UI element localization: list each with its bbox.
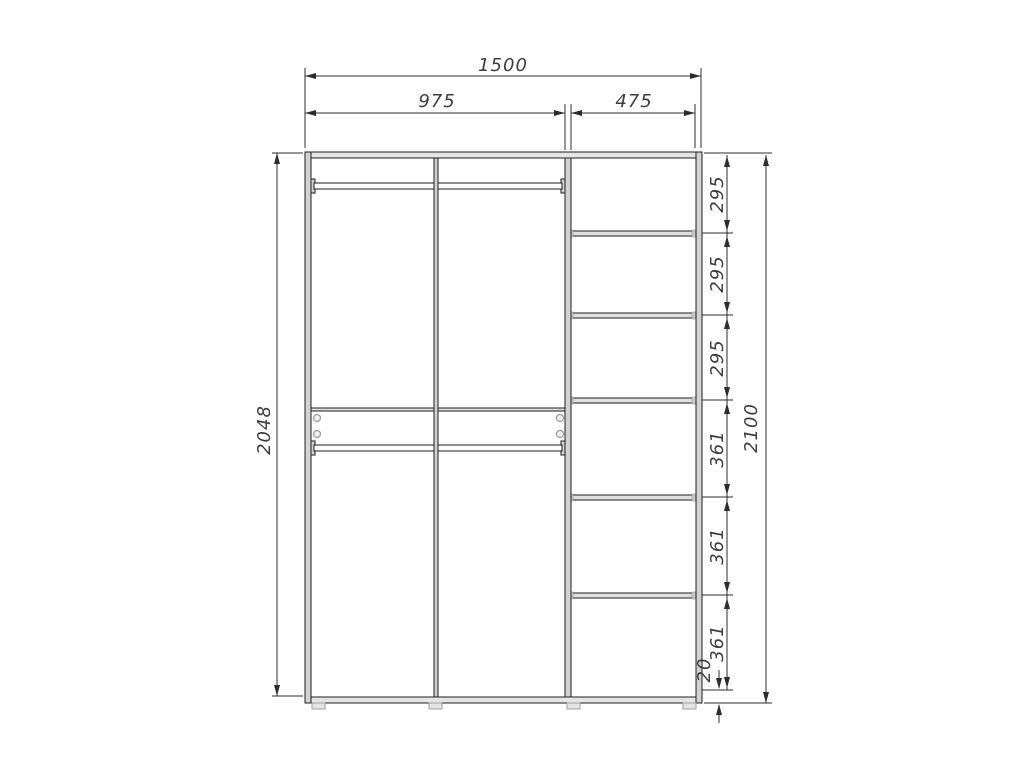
dim-label-right-width: 475 [615,91,652,112]
right-side-panel [696,152,702,703]
dim-label-gap-3: 295 [707,339,728,376]
dim-label-gap-5: 361 [707,527,728,564]
foot [683,703,696,709]
rod-hook-icon [314,431,321,438]
shelf-2 [571,313,696,318]
dim-label-left-height: 2048 [254,405,275,455]
rod-hook-icon [557,415,564,422]
cabinet [305,152,702,709]
dimensions-left: 2048 [254,153,303,696]
shelf-pins [568,230,697,599]
foot [567,703,580,709]
vertical-divider [565,158,571,697]
technical-drawing-svg: 1500 975 475 2048 [0,0,1024,768]
rod-hook-icon [557,431,564,438]
shelf-3 [571,398,696,403]
shelf-1 [571,231,696,236]
right-shelf-column [565,192,697,652]
left-side-panel [305,152,311,703]
dim-label-bottom-offset: 20 [694,658,715,683]
dim-label-gap-6: 361 [707,624,728,661]
center-door-seam [434,158,438,697]
left-compartment [311,158,565,697]
dim-label-total-width: 1500 [478,55,528,76]
dim-label-total-height: 2100 [741,403,762,453]
foot [429,703,442,709]
bottom-panel [305,697,702,703]
dimensions-top: 1500 975 475 [305,55,701,150]
dimensions-right: 295 295 295 361 361 361 20 2100 [694,153,772,723]
shelf-4 [571,495,696,500]
feet [312,703,696,709]
dim-label-gap-1: 295 [707,175,728,212]
top-panel [305,152,702,158]
rod-hook-icon [314,415,321,422]
dim-label-left-width: 975 [418,91,455,112]
foot [312,703,325,709]
dim-label-gap-4: 361 [707,430,728,467]
wardrobe-dimension-drawing: 1500 975 475 2048 [0,0,1024,768]
dim-label-gap-2: 295 [707,255,728,292]
shelf-5 [571,593,696,598]
